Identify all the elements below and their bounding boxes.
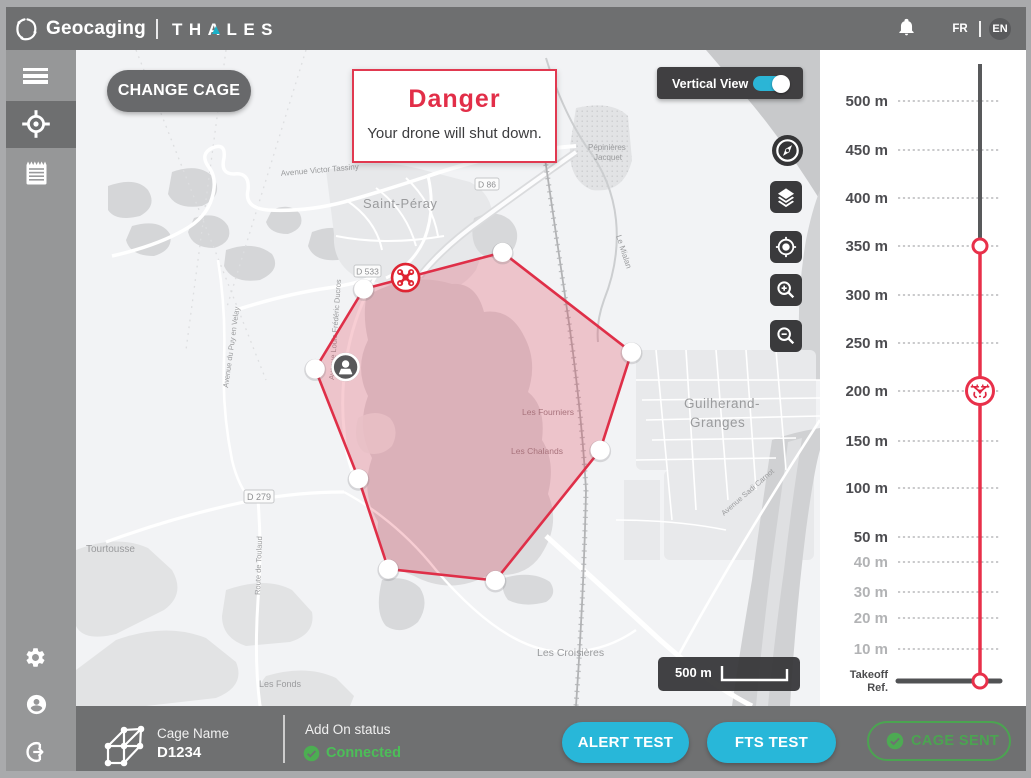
svg-text:150 m: 150 m [845,433,888,450]
svg-text:400 m: 400 m [845,190,888,207]
svg-text:450 m: 450 m [845,142,888,159]
svg-text:Les Croisières: Les Croisières [537,647,604,659]
svg-text:40 m: 40 m [854,554,888,571]
svg-text:D 533: D 533 [356,267,379,277]
svg-text:Guilherand-: Guilherand- [684,396,760,411]
svg-text:200 m: 200 m [845,383,888,400]
svg-text:Takeoff: Takeoff [850,669,889,681]
svg-text:Tourtousse: Tourtousse [86,544,135,555]
svg-text:500 m: 500 m [845,93,888,110]
svg-text:Ref.: Ref. [867,682,888,694]
svg-text:Granges: Granges [690,415,745,430]
svg-text:Saint-Péray: Saint-Péray [363,196,438,211]
svg-text:Pépinières: Pépinières [588,143,626,152]
svg-text:50 m: 50 m [854,529,888,546]
svg-text:100 m: 100 m [845,480,888,497]
svg-text:20 m: 20 m [854,610,888,627]
svg-text:Les Fonds: Les Fonds [259,679,302,689]
svg-text:10 m: 10 m [854,641,888,658]
svg-text:250 m: 250 m [845,335,888,352]
svg-text:300 m: 300 m [845,287,888,304]
svg-text:30 m: 30 m [854,584,888,601]
svg-text:D 279: D 279 [247,492,271,502]
svg-text:D 86: D 86 [478,180,496,190]
svg-text:350 m: 350 m [845,238,888,255]
svg-text:Jacquet: Jacquet [594,153,623,162]
